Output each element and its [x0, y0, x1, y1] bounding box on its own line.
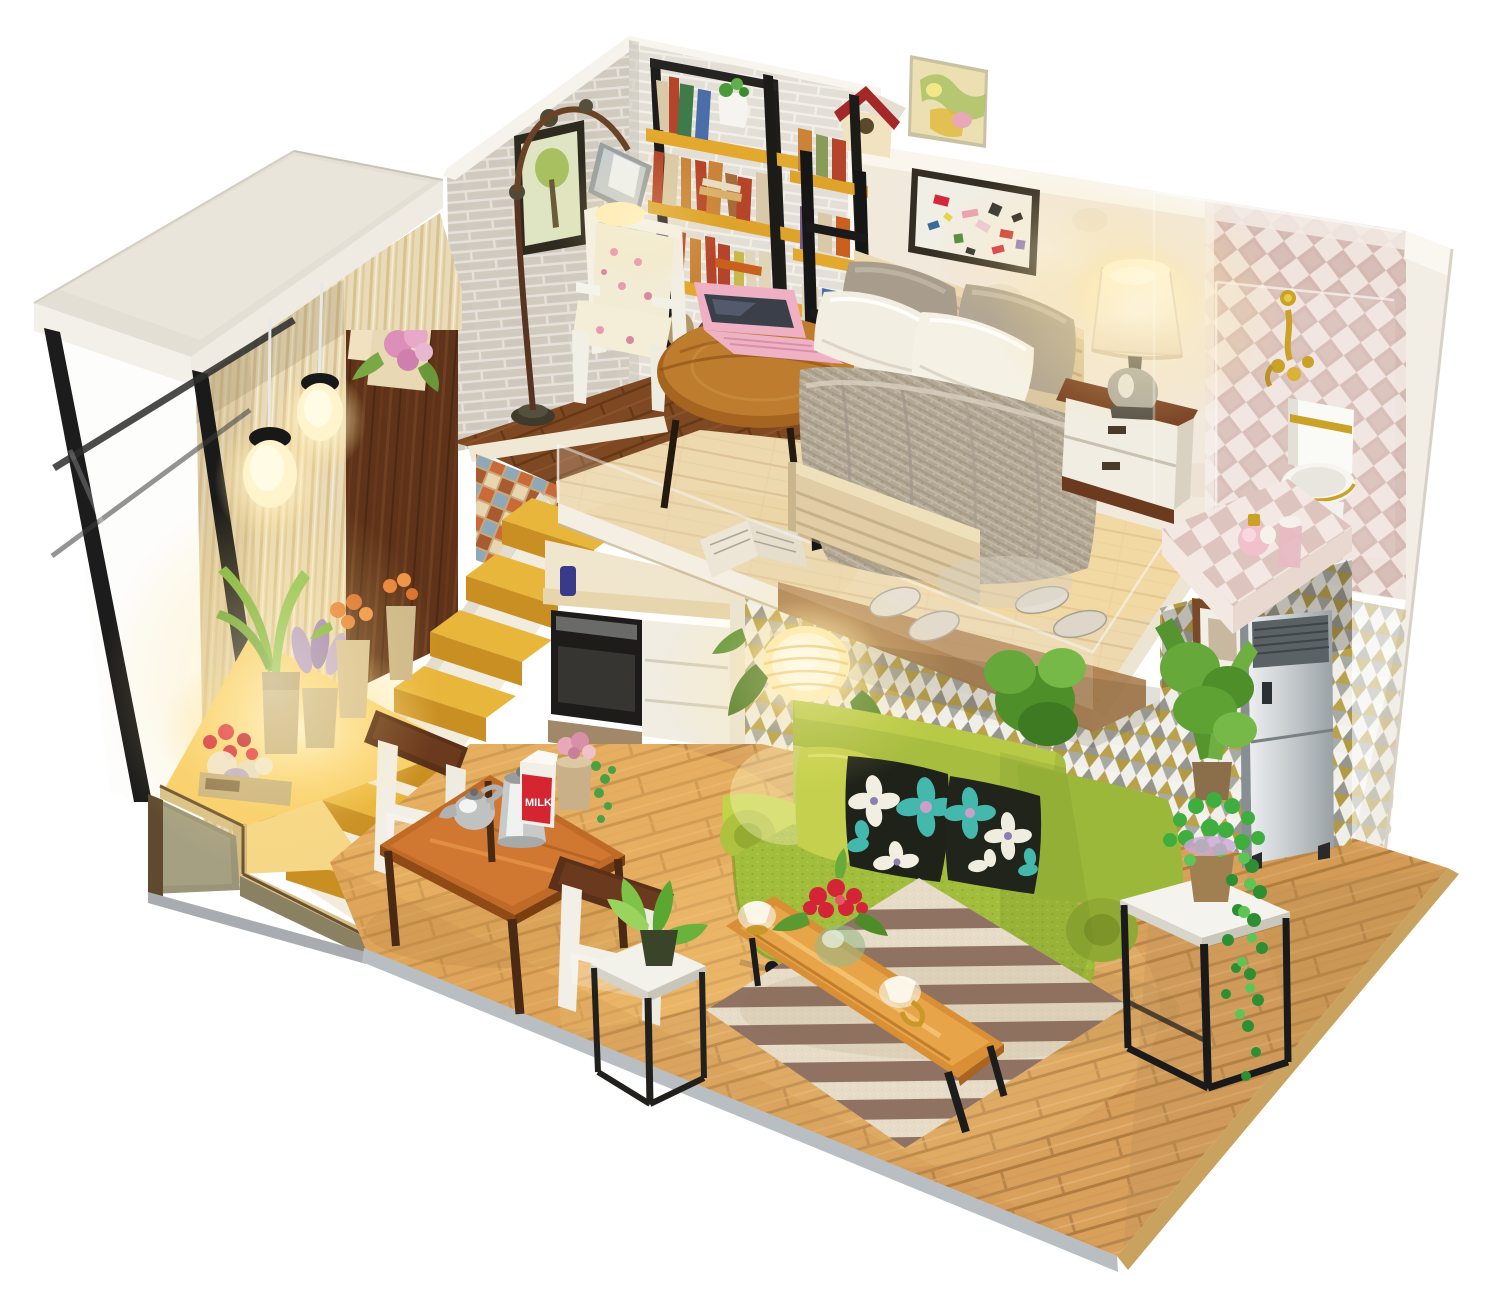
svg-text:MILK: MILK: [525, 797, 552, 809]
